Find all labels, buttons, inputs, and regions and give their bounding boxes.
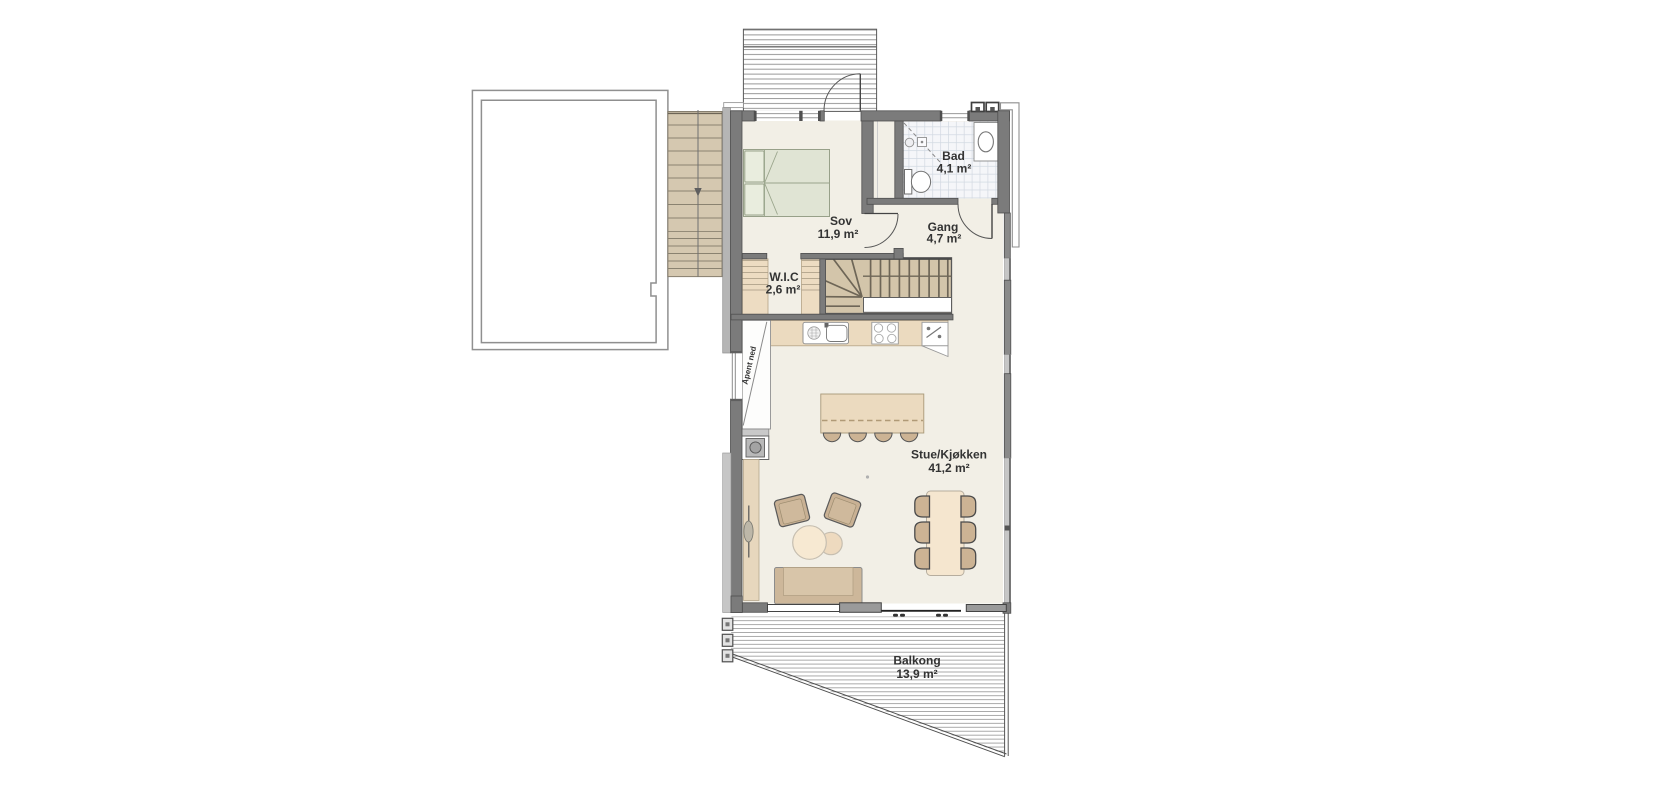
svg-text:11,9 m²: 11,9 m² — [818, 227, 859, 241]
svg-text:Balkong: Balkong — [893, 654, 940, 668]
svg-text:41,2 m²: 41,2 m² — [928, 461, 969, 475]
svg-text:Sov: Sov — [830, 214, 852, 228]
svg-text:4,1 m²: 4,1 m² — [937, 162, 972, 176]
svg-text:4,7 m²: 4,7 m² — [927, 232, 962, 246]
svg-text:2,6 m²: 2,6 m² — [766, 283, 801, 297]
svg-text:Stue/Kjøkken: Stue/Kjøkken — [911, 448, 987, 462]
svg-text:13,9 m²: 13,9 m² — [896, 667, 937, 681]
